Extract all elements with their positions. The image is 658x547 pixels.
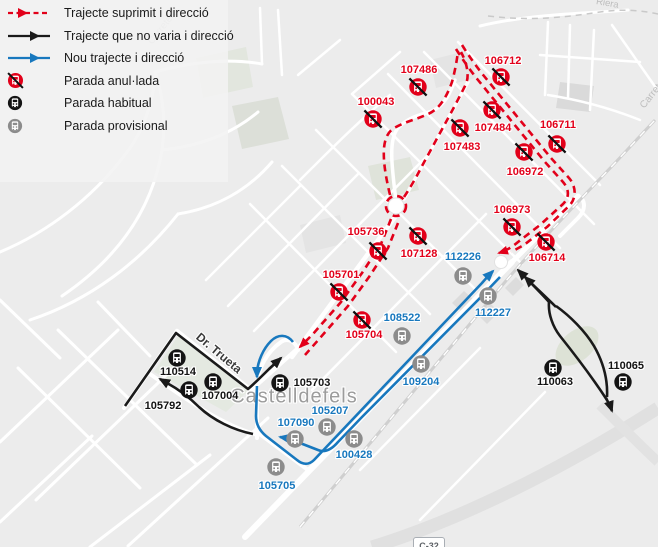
stop-106973 [501,216,523,238]
legend-label: Parada habitual [58,96,152,110]
provisional-stop-icon [343,428,365,450]
legend-label: Nou trajecte i direcció [58,51,184,65]
bus-detour-map: Castelldefels Dr. Trueta Riera Carretera… [0,0,658,547]
stop-label-112226: 112226 [445,251,481,263]
road-badge-c32: C-32 [413,537,445,547]
legend-item-stop-cancelled: Parada anul·lada [6,70,234,93]
stop-105704 [351,309,373,331]
cancelled-stop-icon [362,108,384,130]
stop-105703 [269,372,291,394]
legend-item-stop-provisional: Parada provisional [6,115,234,138]
route-suppressed-sample [6,6,58,20]
provisional-stop-icon [316,416,338,438]
stop-105736 [367,240,389,262]
stop-109204 [410,353,432,375]
stop-108522 [391,325,413,347]
stop-label-107090: 107090 [278,417,315,429]
cancelled-stop-icon [490,66,512,88]
cancelled-stop-icon [481,99,503,121]
stop-label-105704: 105704 [346,329,383,341]
stop-105792 [178,379,200,401]
stop-label-106973: 106973 [494,204,531,216]
legend-item-route-suppressed: Trajecte suprimit i direcció [6,2,234,25]
regular-stop-icon [612,371,634,393]
legend-label: Parada anul·lada [58,74,159,88]
cancelled-stop-icon [513,141,535,163]
stop-label-107128: 107128 [401,248,438,260]
stop-label-110065: 110065 [608,360,644,372]
stop-112227 [477,285,499,307]
stop-107486 [407,76,429,98]
stop-label-100043: 100043 [358,96,395,108]
provisional-stop-icon [391,325,413,347]
cancelled-stop-icon [328,281,350,303]
stop-106972 [513,141,535,163]
stop-label-107484: 107484 [475,122,512,134]
stop-label-107486: 107486 [401,64,438,76]
provisional-stop-icon [452,265,474,287]
suppressed-route [300,45,575,355]
stop-label-110063: 110063 [537,376,573,388]
stop-label-105736: 105736 [348,226,385,238]
stop-label-105207: 105207 [312,405,349,417]
legend-item-route-unchanged: Trajecte que no varia i direcció [6,25,234,48]
stop-label-107483: 107483 [444,141,481,153]
route-unchanged-sample [6,29,58,43]
stop-label-106712: 106712 [485,55,522,67]
stop-label-105701: 105701 [323,269,360,281]
provisional-stop-icon [265,456,287,478]
stop-107090 [284,428,306,450]
cancelled-stop-icon [449,117,471,139]
stop-107128 [407,225,429,247]
cancelled-stop-icon [367,240,389,262]
stop-label-106711: 106711 [540,119,576,131]
legend-line-sample [6,6,54,20]
cancelled-stop-icon [501,216,523,238]
legend-line-sample [6,51,54,65]
cancelled-stop-icon [351,309,373,331]
regular-stop-icon [178,379,200,401]
stop-regular-sample [6,94,58,112]
stop-label-100428: 100428 [336,449,373,461]
provisional-stop-icon [284,428,306,450]
stop-110065 [612,371,634,393]
stop-label-112227: 112227 [475,307,511,319]
stop-provisional-sample [6,117,58,135]
stop-label-105792: 105792 [145,400,182,412]
stop-label-107004: 107004 [202,390,239,402]
legend-label: Parada provisional [58,119,168,133]
route-new-sample [6,51,58,65]
stop-106711 [546,133,568,155]
stop-100043 [362,108,384,130]
cancelled-stop-icon [6,71,25,90]
stop-105207 [316,416,338,438]
stop-label-105705: 105705 [259,480,296,492]
stop-106712 [490,66,512,88]
stop-label-109204: 109204 [403,376,440,388]
provisional-stop-icon [477,285,499,307]
stop-100428 [343,428,365,450]
cancelled-stop-icon [407,76,429,98]
legend-item-stop-regular: Parada habitual [6,92,234,115]
regular-stop-icon [6,94,24,112]
stop-label-106972: 106972 [507,166,544,178]
stop-105705 [265,456,287,478]
stop-label-108522: 108522 [384,312,421,324]
cancelled-stop-icon [546,133,568,155]
stop-label-110514: 110514 [160,366,196,378]
stop-105701 [328,281,350,303]
legend: Trajecte suprimit i direccióTrajecte que… [6,2,234,137]
legend-label: Trajecte suprimit i direcció [58,6,209,20]
stop-112226 [452,265,474,287]
legend-item-route-new: Nou trajecte i direcció [6,47,234,70]
provisional-stop-icon [410,353,432,375]
stop-107483 [449,117,471,139]
provisional-stop-icon [6,117,24,135]
stop-label-106714: 106714 [529,252,566,264]
cancelled-stop-icon [535,231,557,253]
legend-label: Trajecte que no varia i direcció [58,29,234,43]
stop-cancelled-sample [6,71,58,90]
stop-107484 [481,99,503,121]
cancelled-stop-icon [407,225,429,247]
stop-106714 [535,231,557,253]
stop-label-105703: 105703 [294,377,331,389]
regular-stop-icon [269,372,291,394]
legend-line-sample [6,29,54,43]
